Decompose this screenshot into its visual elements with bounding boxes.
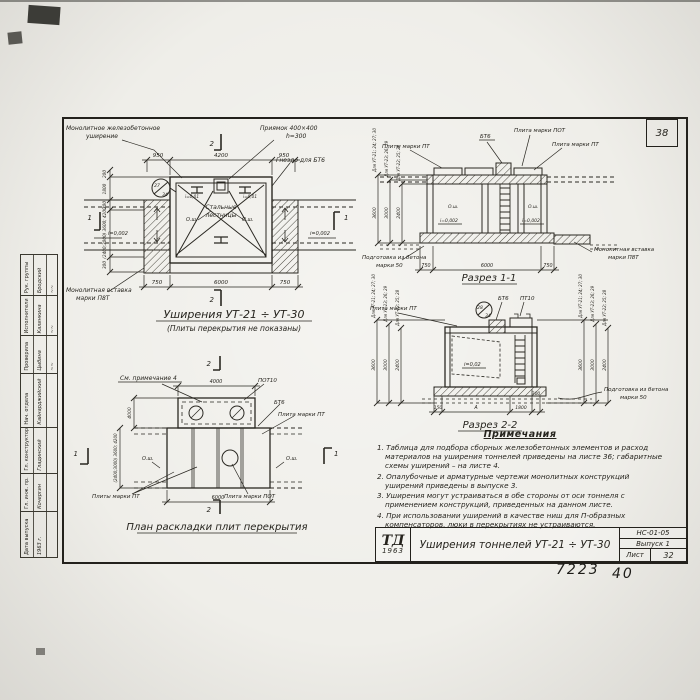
dim-1800: 1800 bbox=[515, 405, 527, 411]
dim-750-left: 750 bbox=[421, 263, 430, 269]
label-bt6: БТ6 bbox=[480, 134, 491, 140]
dim-150: 150 bbox=[434, 405, 443, 411]
stamp-cell: Проверила Цыбина ~~ bbox=[21, 336, 57, 373]
stamp-cell: Исполнители Калинкина ~~ bbox=[21, 296, 57, 336]
drawing1-subtitle: (Плиты перекрытия не показаны) bbox=[167, 324, 301, 333]
vdim-left-label-3: Для УТ-22; 25; 28 bbox=[395, 289, 400, 327]
stamp-name: Бродский bbox=[34, 255, 47, 295]
drawing-widening: Монолитное железобетонное уширение Приям… bbox=[64, 120, 364, 335]
stamp-name: 1963 г. bbox=[34, 512, 47, 557]
logo-monogram: ТД bbox=[382, 534, 405, 548]
photo-artifact bbox=[27, 5, 60, 25]
title-block: ТД 1963 Уширения тоннелей УТ-21 ÷ УТ-30 … bbox=[375, 527, 687, 562]
dim-side-2: 1800 bbox=[102, 183, 107, 194]
label-concrete-prep-2: марки 50 bbox=[376, 263, 403, 269]
blueprint-sheet: 38 bbox=[0, 0, 700, 700]
stamp-cell: Гл. конструктор Гладинский bbox=[21, 428, 57, 474]
dim-300: 300 bbox=[532, 391, 541, 397]
notes-block: Примечания 1. Таблица для подбора сборны… bbox=[377, 429, 663, 530]
vdim-right-label-2: Для УТ-23; 26; 29 bbox=[590, 285, 595, 323]
stamp-name: Кайнарджийский bbox=[34, 374, 47, 427]
notes-title: Примечания bbox=[377, 429, 663, 440]
note-item-2: 2. Опалубочные и арматурные чертежи моно… bbox=[377, 472, 663, 490]
label-pit: Приямок 400×400 bbox=[260, 125, 318, 132]
axis-mark-right: О.ш. bbox=[528, 204, 539, 210]
section-mark-1-left: 1 bbox=[74, 450, 78, 458]
stamp-name: Кочергин bbox=[34, 474, 47, 511]
section2-geometry bbox=[374, 302, 611, 431]
label-pit-h: h=300 bbox=[286, 133, 306, 140]
label-concrete-prep: Подготовка из бетона bbox=[362, 255, 427, 261]
vdim-right-value-2: 3000 bbox=[590, 359, 596, 371]
section-2-2: Плита марки ПТ БТ6 ПТ10 28 34 i=0,02 Под… bbox=[362, 290, 692, 435]
axis-mark-left: О.ш. bbox=[186, 217, 198, 223]
plan-caption: План раскладки плит перекрытия bbox=[126, 522, 307, 533]
drawing1-title: Уширения УТ-21 ÷ УТ-30 bbox=[163, 308, 304, 321]
label-monolithic-insert: Монолитная вставка bbox=[66, 287, 132, 294]
dim-side-5: 300 bbox=[102, 261, 107, 269]
vdim-value-1: 3600 bbox=[372, 207, 378, 219]
section-mark-2-top: 2 bbox=[210, 140, 215, 148]
label-steel-ladders-2: лестницы bbox=[205, 212, 237, 219]
stamp-signature: ~~ bbox=[47, 336, 57, 372]
slope-small-left: i=0,01 bbox=[185, 194, 199, 199]
section-mark-1-right: 1 bbox=[344, 214, 348, 222]
stamp-signature bbox=[47, 428, 57, 473]
label-pot-plate: Плита марки ПОТ bbox=[514, 128, 566, 134]
detail-mark-bottom: 34 bbox=[485, 313, 491, 319]
stamp-signature: ~~ bbox=[47, 296, 57, 335]
slope-small-right: i=0,01 bbox=[243, 194, 257, 199]
dim-6000: 6000 bbox=[481, 263, 493, 269]
handwritten-number: 7223 bbox=[556, 562, 600, 578]
note-item-3: 3. Уширения могут устраиваться в обе сто… bbox=[377, 491, 663, 509]
stamp-role: Нач. отдела bbox=[21, 374, 34, 427]
stamp-name: Калинкина bbox=[34, 296, 47, 335]
slope-right: i=0,002 bbox=[522, 218, 540, 224]
label-concrete-prep-2: марки 50 bbox=[620, 395, 647, 401]
vdim-right-label-3: Для УТ-22; 25; 28 bbox=[602, 289, 607, 327]
dim-top-950-left: 950 bbox=[153, 153, 164, 159]
stamp-cell: Нач. отдела Кайнарджийский bbox=[21, 374, 57, 428]
dim-top-950-right: 950 bbox=[279, 153, 290, 159]
dim-bottom-750-left: 750 bbox=[152, 280, 163, 286]
photo-edge bbox=[0, 0, 700, 2]
photo-artifact bbox=[36, 648, 45, 655]
slope: i=0,02 bbox=[464, 362, 481, 368]
vdim-left-label-2: Для УТ-23; 26; 29 bbox=[383, 285, 388, 323]
stamp-role: Гл. инж. пр. bbox=[21, 474, 34, 511]
label-pt10: ПТ10 bbox=[520, 296, 535, 302]
section-mark-2-top: 2 bbox=[207, 360, 212, 368]
stamp-signature: ~~ bbox=[47, 255, 57, 295]
document-code: НС-01-05 bbox=[620, 528, 686, 539]
note-item-1: 1. Таблица для подбора сборных железобет… bbox=[377, 443, 663, 471]
section-1-1: Плиты марки ПТ БТ6 Плита марки ПОТ Плита… bbox=[362, 118, 687, 288]
label-mono-insert: Монолитная вставка bbox=[594, 247, 655, 253]
title-block-right: НС-01-05 Выпуск 1 Лист 32 bbox=[619, 528, 686, 561]
dim-bottom-6000: 6000 bbox=[214, 280, 228, 286]
axis-mark-right: О.ш. bbox=[242, 217, 254, 223]
vdim-label-1: Для УТ-21; 24; 27; 30 bbox=[372, 128, 377, 173]
sheet-number: 32 bbox=[651, 549, 686, 561]
stamp-name: Гладинский bbox=[34, 428, 47, 473]
label-bt6: БТ6 bbox=[274, 400, 285, 406]
label-pt-plates-left: Плиты марки ПТ bbox=[382, 144, 430, 150]
dim-side-1: 200 bbox=[102, 170, 107, 178]
sheet-label: Лист bbox=[620, 549, 651, 561]
plan-slab-layout: См. примечание 4 ПОТ10 БТ6 Плита марки П… bbox=[62, 352, 372, 542]
stamp-signature bbox=[47, 512, 57, 557]
detail-mark-top: 27 bbox=[154, 183, 160, 189]
dim-side-4: (2400;3000) 3600; 4200 bbox=[102, 207, 107, 259]
section-mark-1-left: 1 bbox=[88, 214, 92, 222]
dim-6000-bottom: 6000 bbox=[212, 495, 225, 501]
stamp-role: Дата выпуска bbox=[21, 512, 34, 557]
handwritten-number-2: 40 bbox=[612, 566, 634, 582]
dim-A: А bbox=[473, 405, 477, 411]
axis-mark-left: О.ш. bbox=[448, 204, 459, 210]
section-mark-1-right: 1 bbox=[334, 450, 338, 458]
label-steel-ladders: Стальные bbox=[205, 204, 236, 211]
section-mark-2-bottom: 2 bbox=[207, 506, 212, 514]
stamp-signature bbox=[47, 374, 57, 427]
vdim-value-3: 2400 bbox=[396, 207, 402, 219]
section-mark-2-bottom: 2 bbox=[210, 296, 215, 304]
label-see-note-4: См. примечание 4 bbox=[120, 375, 177, 382]
stamp-role: Исполнители bbox=[21, 296, 34, 335]
label-pot10: ПОТ10 bbox=[258, 378, 277, 384]
vdim-left-value-3: 2400 bbox=[395, 359, 401, 371]
section1-caption: Разрез 1-1 bbox=[462, 273, 517, 284]
label-insert-mark: марки П8Т bbox=[76, 295, 111, 302]
axis-mark-right: О.ш. bbox=[286, 456, 298, 462]
detail-mark-bottom: 34 bbox=[162, 192, 168, 198]
dim-4000-top: 4000 bbox=[210, 379, 223, 385]
detail-mark-top: 28 bbox=[477, 305, 483, 311]
label-monolithic-widening: Монолитное железобетонное bbox=[66, 125, 160, 132]
slope-left: i=0,002 bbox=[440, 218, 458, 224]
logo-box: ТД 1963 bbox=[376, 528, 411, 561]
stamp-role: Гл. конструктор bbox=[21, 428, 34, 473]
label-concrete-prep: Подготовка из бетона bbox=[604, 387, 669, 393]
stamp-cell: Гл. инж. пр. Кочергин bbox=[21, 474, 57, 512]
photo-artifact bbox=[7, 31, 22, 44]
vdim-label-2: Для УТ-23; 26; 29 bbox=[384, 140, 389, 178]
vdim-right-value-1: 3600 bbox=[578, 359, 584, 371]
slope-right: i=0,002 bbox=[310, 231, 330, 237]
stamp-name: Цыбина bbox=[34, 336, 47, 372]
label-pot-plate-bottom: Плита марки ПОТ bbox=[224, 494, 276, 500]
label-mono-insert-2: марки П8Т bbox=[608, 255, 639, 261]
dim-top-4200: 4200 bbox=[214, 153, 228, 159]
dim-750-right: 750 bbox=[543, 263, 552, 269]
label-monolithic-widening-2: уширение bbox=[85, 133, 118, 140]
vdim-label-3: Для УТ-22; 25; 28 bbox=[396, 144, 401, 182]
stamp-role: Проверила bbox=[21, 336, 34, 372]
section1-geometry bbox=[375, 135, 620, 284]
vdim-4000: 4000 bbox=[127, 407, 133, 419]
label-pt-plate-right: Плита марки ПТ bbox=[552, 142, 599, 148]
vdim-heights: (2400;3000) 3600; 4200 bbox=[113, 433, 118, 483]
vdim-left-label-1: Для УТ-21; 24; 27; 30 bbox=[371, 274, 376, 319]
label-bt6: БТ6 bbox=[498, 296, 509, 302]
stamp-cell: Дата выпуска 1963 г. bbox=[21, 512, 57, 557]
axis-mark-left: О.ш. bbox=[142, 456, 154, 462]
issue-number: Выпуск 1 bbox=[620, 539, 686, 550]
vdim-right-label-1: Для УТ-21; 24; 27; 30 bbox=[578, 274, 583, 319]
vdim-value-2: 3000 bbox=[384, 207, 390, 219]
sheet-title: Уширения тоннелей УТ-21 ÷ УТ-30 bbox=[411, 528, 619, 561]
label-pt-plates-bottom: Плиты марки ПТ bbox=[92, 494, 140, 500]
vdim-right-value-3: 2400 bbox=[602, 359, 608, 371]
stamp-cell: Рук. группы Бродский ~~ bbox=[21, 255, 57, 296]
label-pt-plate: Плита марки ПТ bbox=[370, 306, 417, 312]
dim-bottom-750-right: 750 bbox=[280, 280, 291, 286]
vdim-left-value-2: 3000 bbox=[383, 359, 389, 371]
stamp-role: Рук. группы bbox=[21, 255, 34, 295]
slope-left: i=0,002 bbox=[108, 231, 128, 237]
stamp-signature bbox=[47, 474, 57, 511]
side-stamp: Дата выпуска 1963 г. Гл. инж. пр. Кочерг… bbox=[20, 254, 58, 558]
logo-year: 1963 bbox=[382, 548, 404, 555]
label-pt-plate-right: Плита марки ПТ bbox=[278, 412, 325, 418]
